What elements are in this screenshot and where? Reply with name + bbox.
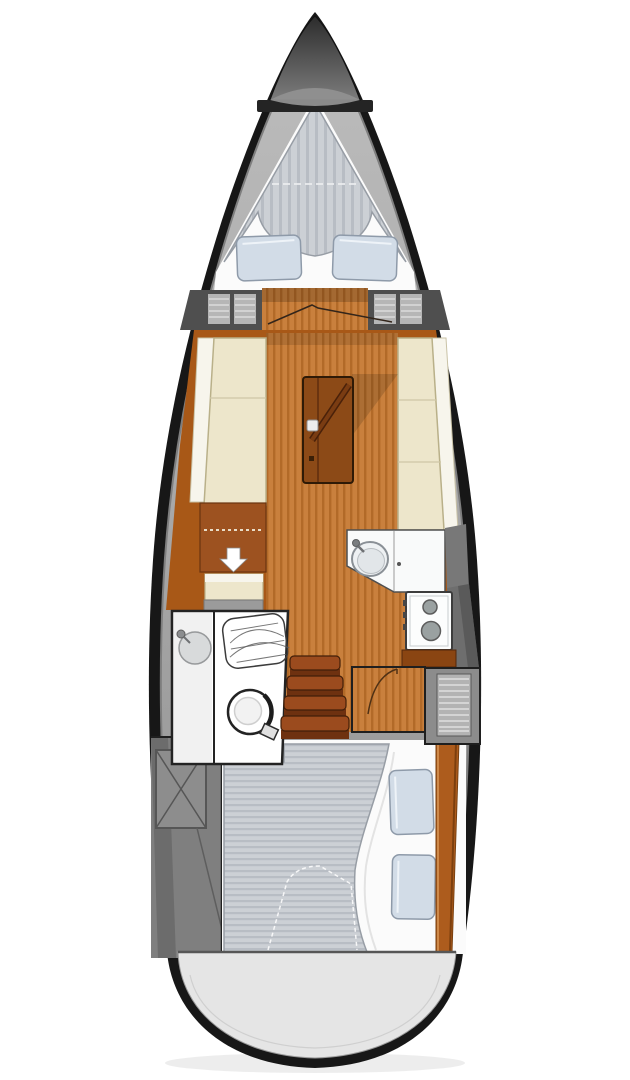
basin-faucet	[177, 630, 185, 638]
hull-panel-upper	[445, 524, 469, 588]
pillow-highlight	[398, 861, 399, 913]
aft-cabin	[222, 740, 466, 954]
burner-small	[423, 600, 437, 614]
stove	[403, 592, 452, 650]
step-4	[281, 716, 349, 739]
boat-floorplan-canvas	[0, 0, 630, 1080]
door-cell-floor	[352, 667, 425, 732]
aft-cabin-door	[352, 667, 425, 732]
table-cupholder	[307, 420, 318, 431]
sink-bowl	[358, 549, 385, 574]
nav-seat-top-edge	[205, 574, 263, 582]
step-2	[287, 676, 343, 697]
companionway-steps	[281, 656, 349, 739]
stove-knob	[403, 624, 407, 630]
step-3	[284, 696, 346, 717]
burner-large	[422, 622, 441, 641]
saloon-table	[303, 377, 353, 483]
head-compartment	[172, 611, 291, 764]
bow-anchor-locker	[257, 16, 373, 112]
forward-bulkhead	[180, 288, 450, 333]
table-fitting	[309, 456, 314, 461]
bulkhead-floor-shadow	[262, 288, 368, 302]
sink-faucet	[353, 540, 360, 547]
toilet-seat	[235, 698, 262, 725]
galley-shelf	[402, 650, 456, 667]
transom-deck	[178, 952, 456, 1058]
cabinet-handle	[397, 562, 401, 566]
stove-knob	[403, 600, 407, 606]
saloon-floor-shadow	[266, 333, 398, 345]
step-1	[290, 656, 340, 677]
door-strip-floor	[352, 652, 404, 667]
floorplan-svg	[0, 0, 630, 1080]
aft-technical-space	[151, 737, 228, 958]
anchor-locker-cap	[270, 16, 360, 100]
engine-vent	[425, 668, 480, 744]
stern-transom	[178, 952, 456, 1058]
stove-knob	[403, 612, 407, 618]
settee-port-cushion	[204, 338, 266, 505]
